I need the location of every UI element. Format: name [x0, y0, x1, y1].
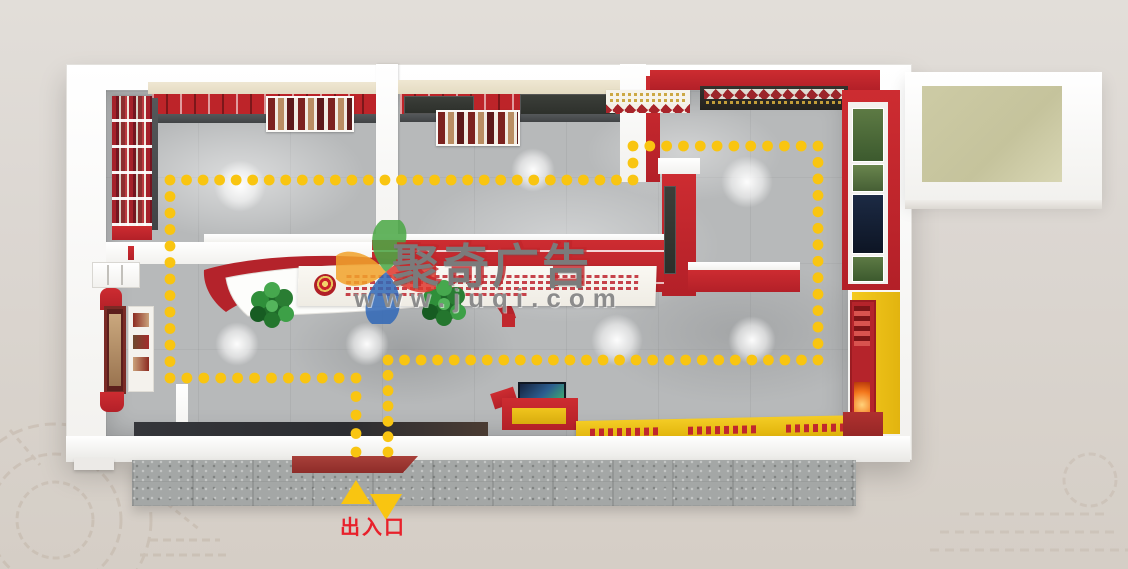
route-dot: [695, 141, 706, 152]
route-dot: [813, 355, 824, 366]
floorplan-render: 出入口 聚奇广告 www.juqi.com: [0, 0, 1128, 569]
route-dot: [351, 428, 362, 439]
route-dot: [647, 355, 658, 366]
route-dot: [399, 355, 410, 366]
route-dot: [578, 175, 589, 186]
route-dot: [351, 391, 362, 402]
route-dot: [813, 338, 824, 349]
route-dot: [165, 307, 176, 318]
route-dot: [813, 223, 824, 234]
route-dot: [712, 141, 723, 152]
route-dot: [548, 355, 559, 366]
route-dot: [215, 373, 226, 384]
route-dot: [346, 175, 357, 186]
route-dot: [383, 355, 394, 366]
route-dot: [249, 373, 260, 384]
route-dot: [545, 175, 556, 186]
route-dot: [181, 175, 192, 186]
route-dot: [697, 355, 708, 366]
route-dot: [729, 141, 740, 152]
route-dot: [465, 355, 476, 366]
route-dot: [198, 175, 209, 186]
route-dot: [383, 370, 394, 381]
route-dot: [165, 373, 176, 384]
route-dot: [449, 355, 460, 366]
route-dot: [383, 431, 394, 442]
route-dot: [462, 175, 473, 186]
route-dot: [334, 373, 345, 384]
route-dot: [165, 224, 176, 235]
route-dot: [351, 410, 362, 421]
route-dot: [165, 191, 176, 202]
route-dot: [232, 373, 243, 384]
route-dot: [182, 373, 193, 384]
route-dot: [413, 175, 424, 186]
route-dot: [611, 175, 622, 186]
route-dot: [429, 175, 440, 186]
route-dot: [813, 305, 824, 316]
route-dot: [214, 175, 225, 186]
route-dot: [678, 141, 689, 152]
route-dot: [813, 256, 824, 267]
route-dot: [165, 257, 176, 268]
route-dot: [813, 206, 824, 217]
route-dot: [380, 175, 391, 186]
route-dot: [165, 290, 176, 301]
route-dot: [231, 175, 242, 186]
route-dot: [297, 175, 308, 186]
route-dot: [531, 355, 542, 366]
route-dot: [479, 175, 490, 186]
route-dot: [745, 141, 756, 152]
route-dot: [565, 355, 576, 366]
route-dot: [595, 175, 606, 186]
route-dot: [614, 355, 625, 366]
route-dot: [432, 355, 443, 366]
route-dot: [247, 175, 258, 186]
route-dot: [762, 141, 773, 152]
route-dot: [661, 141, 672, 152]
route-dot: [317, 373, 328, 384]
route-dot: [796, 355, 807, 366]
route-dot: [416, 355, 427, 366]
route-dot: [512, 175, 523, 186]
route-dot: [165, 274, 176, 285]
route-dot: [165, 323, 176, 334]
route-dot: [598, 355, 609, 366]
route-dot: [813, 190, 824, 201]
route-dot: [644, 141, 655, 152]
route-dot: [664, 355, 675, 366]
route-dot: [383, 401, 394, 412]
route-dot: [363, 175, 374, 186]
route-dot: [498, 355, 509, 366]
route-dot: [266, 373, 277, 384]
route-dot: [628, 158, 639, 169]
route-dot: [482, 355, 493, 366]
route-dot: [396, 175, 407, 186]
route-dot: [528, 175, 539, 186]
route-dot: [813, 239, 824, 250]
route-dot: [813, 289, 824, 300]
route-dot: [730, 355, 741, 366]
route-dot: [283, 373, 294, 384]
entrance-exit-label: 出入口: [336, 511, 410, 540]
route-dot: [796, 141, 807, 152]
entry-arrow-icon: [341, 480, 371, 504]
route-dot: [446, 175, 457, 186]
route-dot: [495, 175, 506, 186]
route-dot: [383, 385, 394, 396]
route-dot: [165, 340, 176, 351]
route-dot: [813, 322, 824, 333]
route-dot: [779, 141, 790, 152]
route-dot: [746, 355, 757, 366]
route-dot: [813, 272, 824, 283]
route-dot: [165, 241, 176, 252]
route-dot: [631, 355, 642, 366]
route-dot: [628, 141, 639, 152]
route-dot: [813, 157, 824, 168]
route-dot: [515, 355, 526, 366]
route-dot: [561, 175, 572, 186]
route-dot: [280, 175, 291, 186]
route-dot: [383, 447, 394, 458]
route-dot: [680, 355, 691, 366]
route-dot: [165, 208, 176, 219]
route-dot: [713, 355, 724, 366]
route-dot: [581, 355, 592, 366]
route-dot: [383, 416, 394, 427]
route-dot: [165, 175, 176, 186]
route-dot: [628, 175, 639, 186]
route-dot: [300, 373, 311, 384]
route-dot: [813, 141, 824, 152]
route-dot: [351, 373, 362, 384]
watermark-url-text: www.juqi.com: [354, 283, 624, 314]
route-dot: [198, 373, 209, 384]
route-dot: [813, 174, 824, 185]
route-dot: [264, 175, 275, 186]
route-dot: [351, 447, 362, 458]
route-dot: [763, 355, 774, 366]
route-dot: [165, 356, 176, 367]
route-dot: [330, 175, 341, 186]
route-dot: [313, 175, 324, 186]
route-dot: [780, 355, 791, 366]
